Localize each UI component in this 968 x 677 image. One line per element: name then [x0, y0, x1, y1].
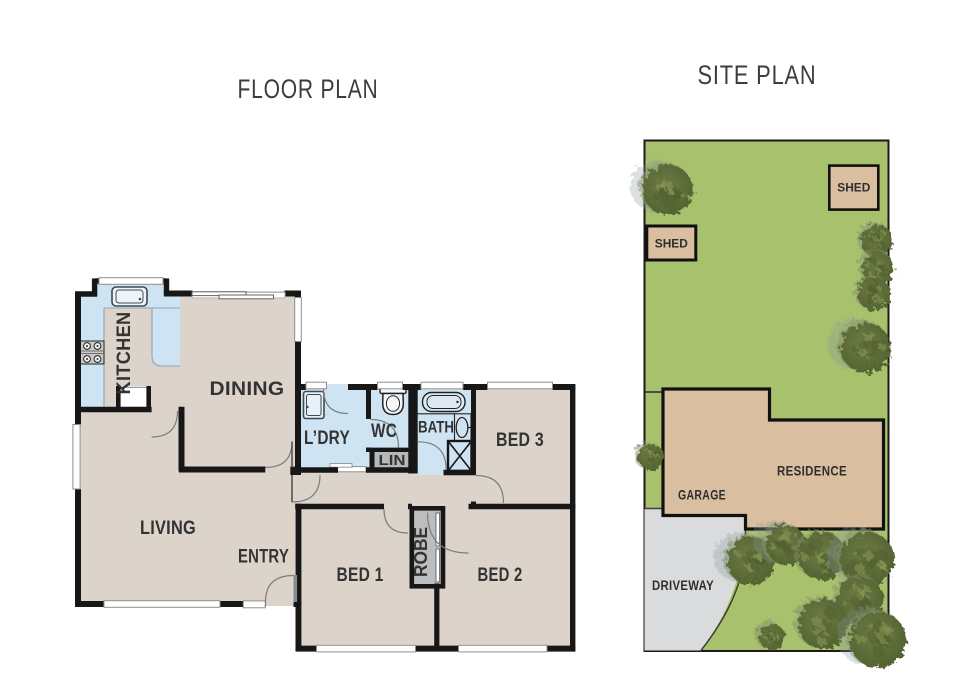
svg-text:DRIVEWAY: DRIVEWAY	[652, 578, 714, 593]
svg-text:RESIDENCE: RESIDENCE	[777, 464, 847, 479]
svg-text:ROBE: ROBE	[411, 527, 431, 577]
svg-text:DINING: DINING	[210, 378, 285, 400]
svg-text:BED 2: BED 2	[478, 564, 523, 586]
svg-text:KITCHEN: KITCHEN	[113, 312, 135, 395]
svg-text:LIN: LIN	[379, 453, 406, 469]
svg-text:BED 1: BED 1	[337, 564, 384, 586]
svg-text:LIVING: LIVING	[140, 517, 196, 539]
svg-text:L’DRY: L’DRY	[304, 427, 350, 449]
svg-text:FLOOR PLAN: FLOOR PLAN	[238, 74, 379, 104]
svg-text:BED 3: BED 3	[496, 429, 544, 451]
svg-text:BATH: BATH	[418, 418, 454, 437]
svg-text:GARAGE: GARAGE	[678, 488, 726, 503]
svg-text:WC: WC	[371, 420, 397, 442]
svg-text:SITE PLAN: SITE PLAN	[698, 60, 817, 90]
svg-text:SHED: SHED	[655, 239, 688, 251]
svg-text:ENTRY: ENTRY	[238, 546, 289, 568]
svg-text:SHED: SHED	[837, 183, 870, 195]
